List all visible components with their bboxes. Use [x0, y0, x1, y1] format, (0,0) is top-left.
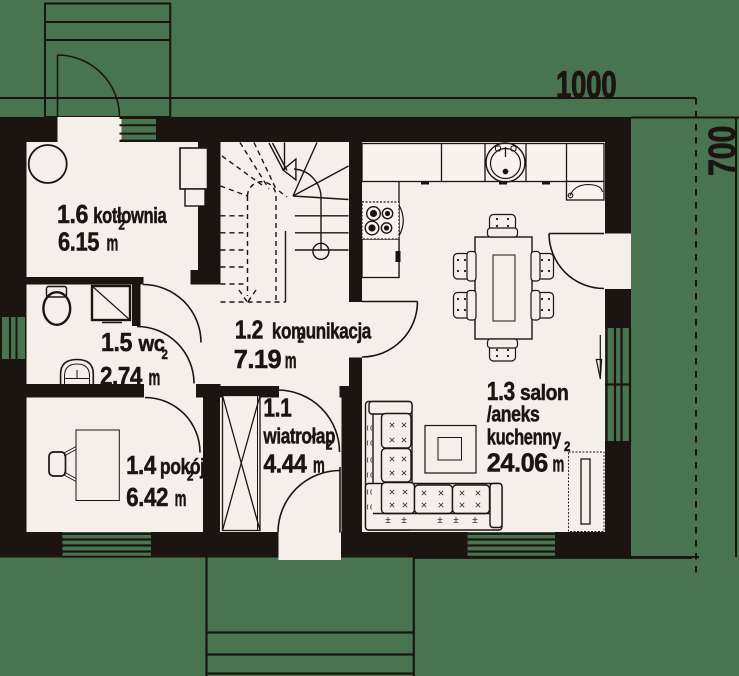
svg-text:2: 2 — [187, 468, 194, 484]
svg-text:2: 2 — [326, 437, 333, 453]
svg-text:2: 2 — [298, 330, 305, 346]
svg-text:1.1: 1.1 — [263, 393, 291, 423]
svg-text:m: m — [553, 452, 565, 477]
svg-text:/aneks: /aneks — [487, 402, 540, 427]
svg-text:kotłownia: kotłownia — [93, 203, 167, 228]
svg-text:komunikacja: komunikacja — [272, 319, 372, 344]
svg-text:24.06: 24.06 — [487, 448, 548, 478]
svg-text:wc: wc — [138, 331, 165, 356]
svg-text:1000: 1000 — [556, 65, 617, 107]
svg-text:2: 2 — [119, 217, 126, 233]
svg-text:m: m — [285, 348, 297, 373]
svg-text:1.5: 1.5 — [101, 327, 132, 357]
svg-text:m: m — [149, 365, 161, 390]
svg-text:700: 700 — [702, 126, 739, 176]
svg-text:7.19: 7.19 — [234, 344, 282, 374]
svg-text:2: 2 — [162, 346, 169, 362]
svg-text:1.4: 1.4 — [126, 450, 157, 480]
svg-text:m: m — [107, 231, 119, 256]
svg-text:6.42: 6.42 — [126, 482, 168, 512]
svg-text:pokój: pokój — [160, 454, 205, 479]
svg-text:4.44: 4.44 — [263, 449, 307, 479]
svg-text:kuchenny: kuchenny — [487, 425, 562, 450]
svg-text:1.6: 1.6 — [57, 199, 88, 229]
svg-text:2: 2 — [564, 438, 571, 454]
svg-text:m: m — [313, 453, 325, 478]
svg-text:1.2: 1.2 — [235, 315, 263, 345]
svg-text:2.74: 2.74 — [100, 361, 143, 391]
svg-text:6.15: 6.15 — [58, 227, 99, 257]
svg-text:m: m — [175, 486, 187, 511]
svg-text:wiatrołap: wiatrołap — [263, 424, 335, 449]
